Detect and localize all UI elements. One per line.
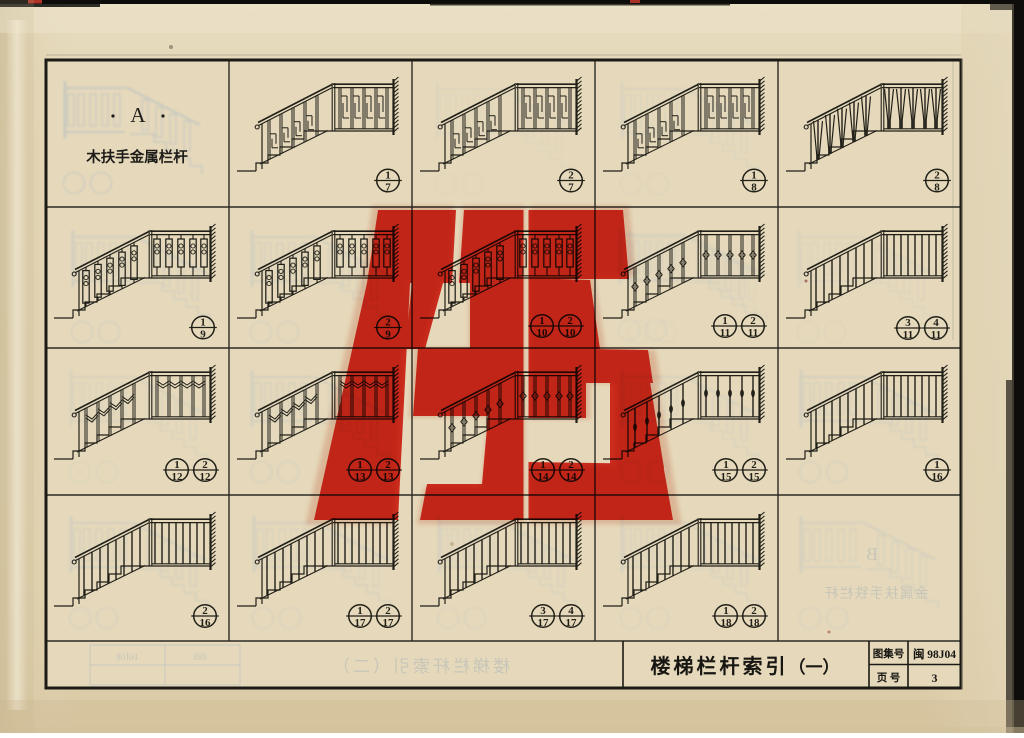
svg-text:7: 7 bbox=[568, 182, 574, 194]
svg-text:4: 4 bbox=[568, 605, 574, 617]
svg-text:18: 18 bbox=[749, 617, 761, 629]
svg-text:1: 1 bbox=[751, 170, 757, 182]
svg-text:楼梯栏杆索引（一）: 楼梯栏杆索引（一） bbox=[651, 654, 840, 678]
svg-text:1: 1 bbox=[723, 459, 729, 471]
svg-text:3: 3 bbox=[932, 671, 938, 685]
svg-text:11: 11 bbox=[931, 329, 941, 341]
svg-text:17: 17 bbox=[538, 617, 550, 629]
svg-text:18: 18 bbox=[721, 617, 733, 629]
svg-text:2: 2 bbox=[568, 170, 574, 182]
svg-text:15: 15 bbox=[749, 471, 761, 483]
svg-text:1: 1 bbox=[934, 459, 940, 471]
svg-text:2: 2 bbox=[751, 459, 757, 471]
svg-text:17: 17 bbox=[355, 617, 367, 629]
svg-text:17: 17 bbox=[566, 617, 578, 629]
svg-text:1: 1 bbox=[723, 605, 729, 617]
svg-text:12: 12 bbox=[200, 471, 212, 483]
svg-text:2: 2 bbox=[385, 605, 391, 617]
svg-text:2: 2 bbox=[202, 459, 208, 471]
svg-text:木扶手金属栏杆: 木扶手金属栏杆 bbox=[85, 148, 188, 166]
svg-text:楼梯栏杆索引（二）: 楼梯栏杆索引（二） bbox=[330, 657, 510, 676]
svg-text:2: 2 bbox=[751, 605, 757, 617]
svg-text:11: 11 bbox=[748, 327, 758, 339]
svg-text:8: 8 bbox=[934, 182, 940, 194]
svg-text:B: B bbox=[866, 544, 878, 564]
svg-text:2: 2 bbox=[934, 170, 940, 182]
svg-text:金属扶手铁栏杆: 金属扶手铁栏杆 bbox=[824, 586, 929, 602]
svg-text:图集号: 图集号 bbox=[873, 647, 905, 660]
svg-text:1: 1 bbox=[722, 315, 728, 327]
svg-text:16: 16 bbox=[932, 471, 944, 483]
svg-text:3: 3 bbox=[540, 605, 546, 617]
svg-text:9: 9 bbox=[200, 329, 206, 341]
svg-text:17: 17 bbox=[383, 617, 395, 629]
svg-text:15: 15 bbox=[721, 471, 733, 483]
svg-text:页 号: 页 号 bbox=[877, 672, 901, 684]
svg-text:2: 2 bbox=[750, 315, 756, 327]
svg-text:11: 11 bbox=[903, 329, 913, 341]
svg-text:80J04: 80J04 bbox=[116, 652, 138, 662]
svg-text:1: 1 bbox=[200, 317, 206, 329]
svg-text:12: 12 bbox=[172, 471, 184, 483]
svg-text:A: A bbox=[130, 103, 146, 127]
svg-text:889: 889 bbox=[193, 652, 207, 662]
svg-text:1: 1 bbox=[357, 605, 363, 617]
svg-text:1: 1 bbox=[174, 459, 180, 471]
svg-text:11: 11 bbox=[720, 327, 730, 339]
svg-text:16: 16 bbox=[200, 617, 212, 629]
svg-text:1: 1 bbox=[385, 170, 391, 182]
svg-text:闽 98J04: 闽 98J04 bbox=[913, 647, 956, 661]
svg-text:7: 7 bbox=[385, 182, 391, 194]
svg-text:4: 4 bbox=[933, 317, 939, 329]
svg-text:3: 3 bbox=[905, 317, 911, 329]
svg-text:2: 2 bbox=[202, 605, 208, 617]
svg-text:8: 8 bbox=[751, 182, 757, 194]
